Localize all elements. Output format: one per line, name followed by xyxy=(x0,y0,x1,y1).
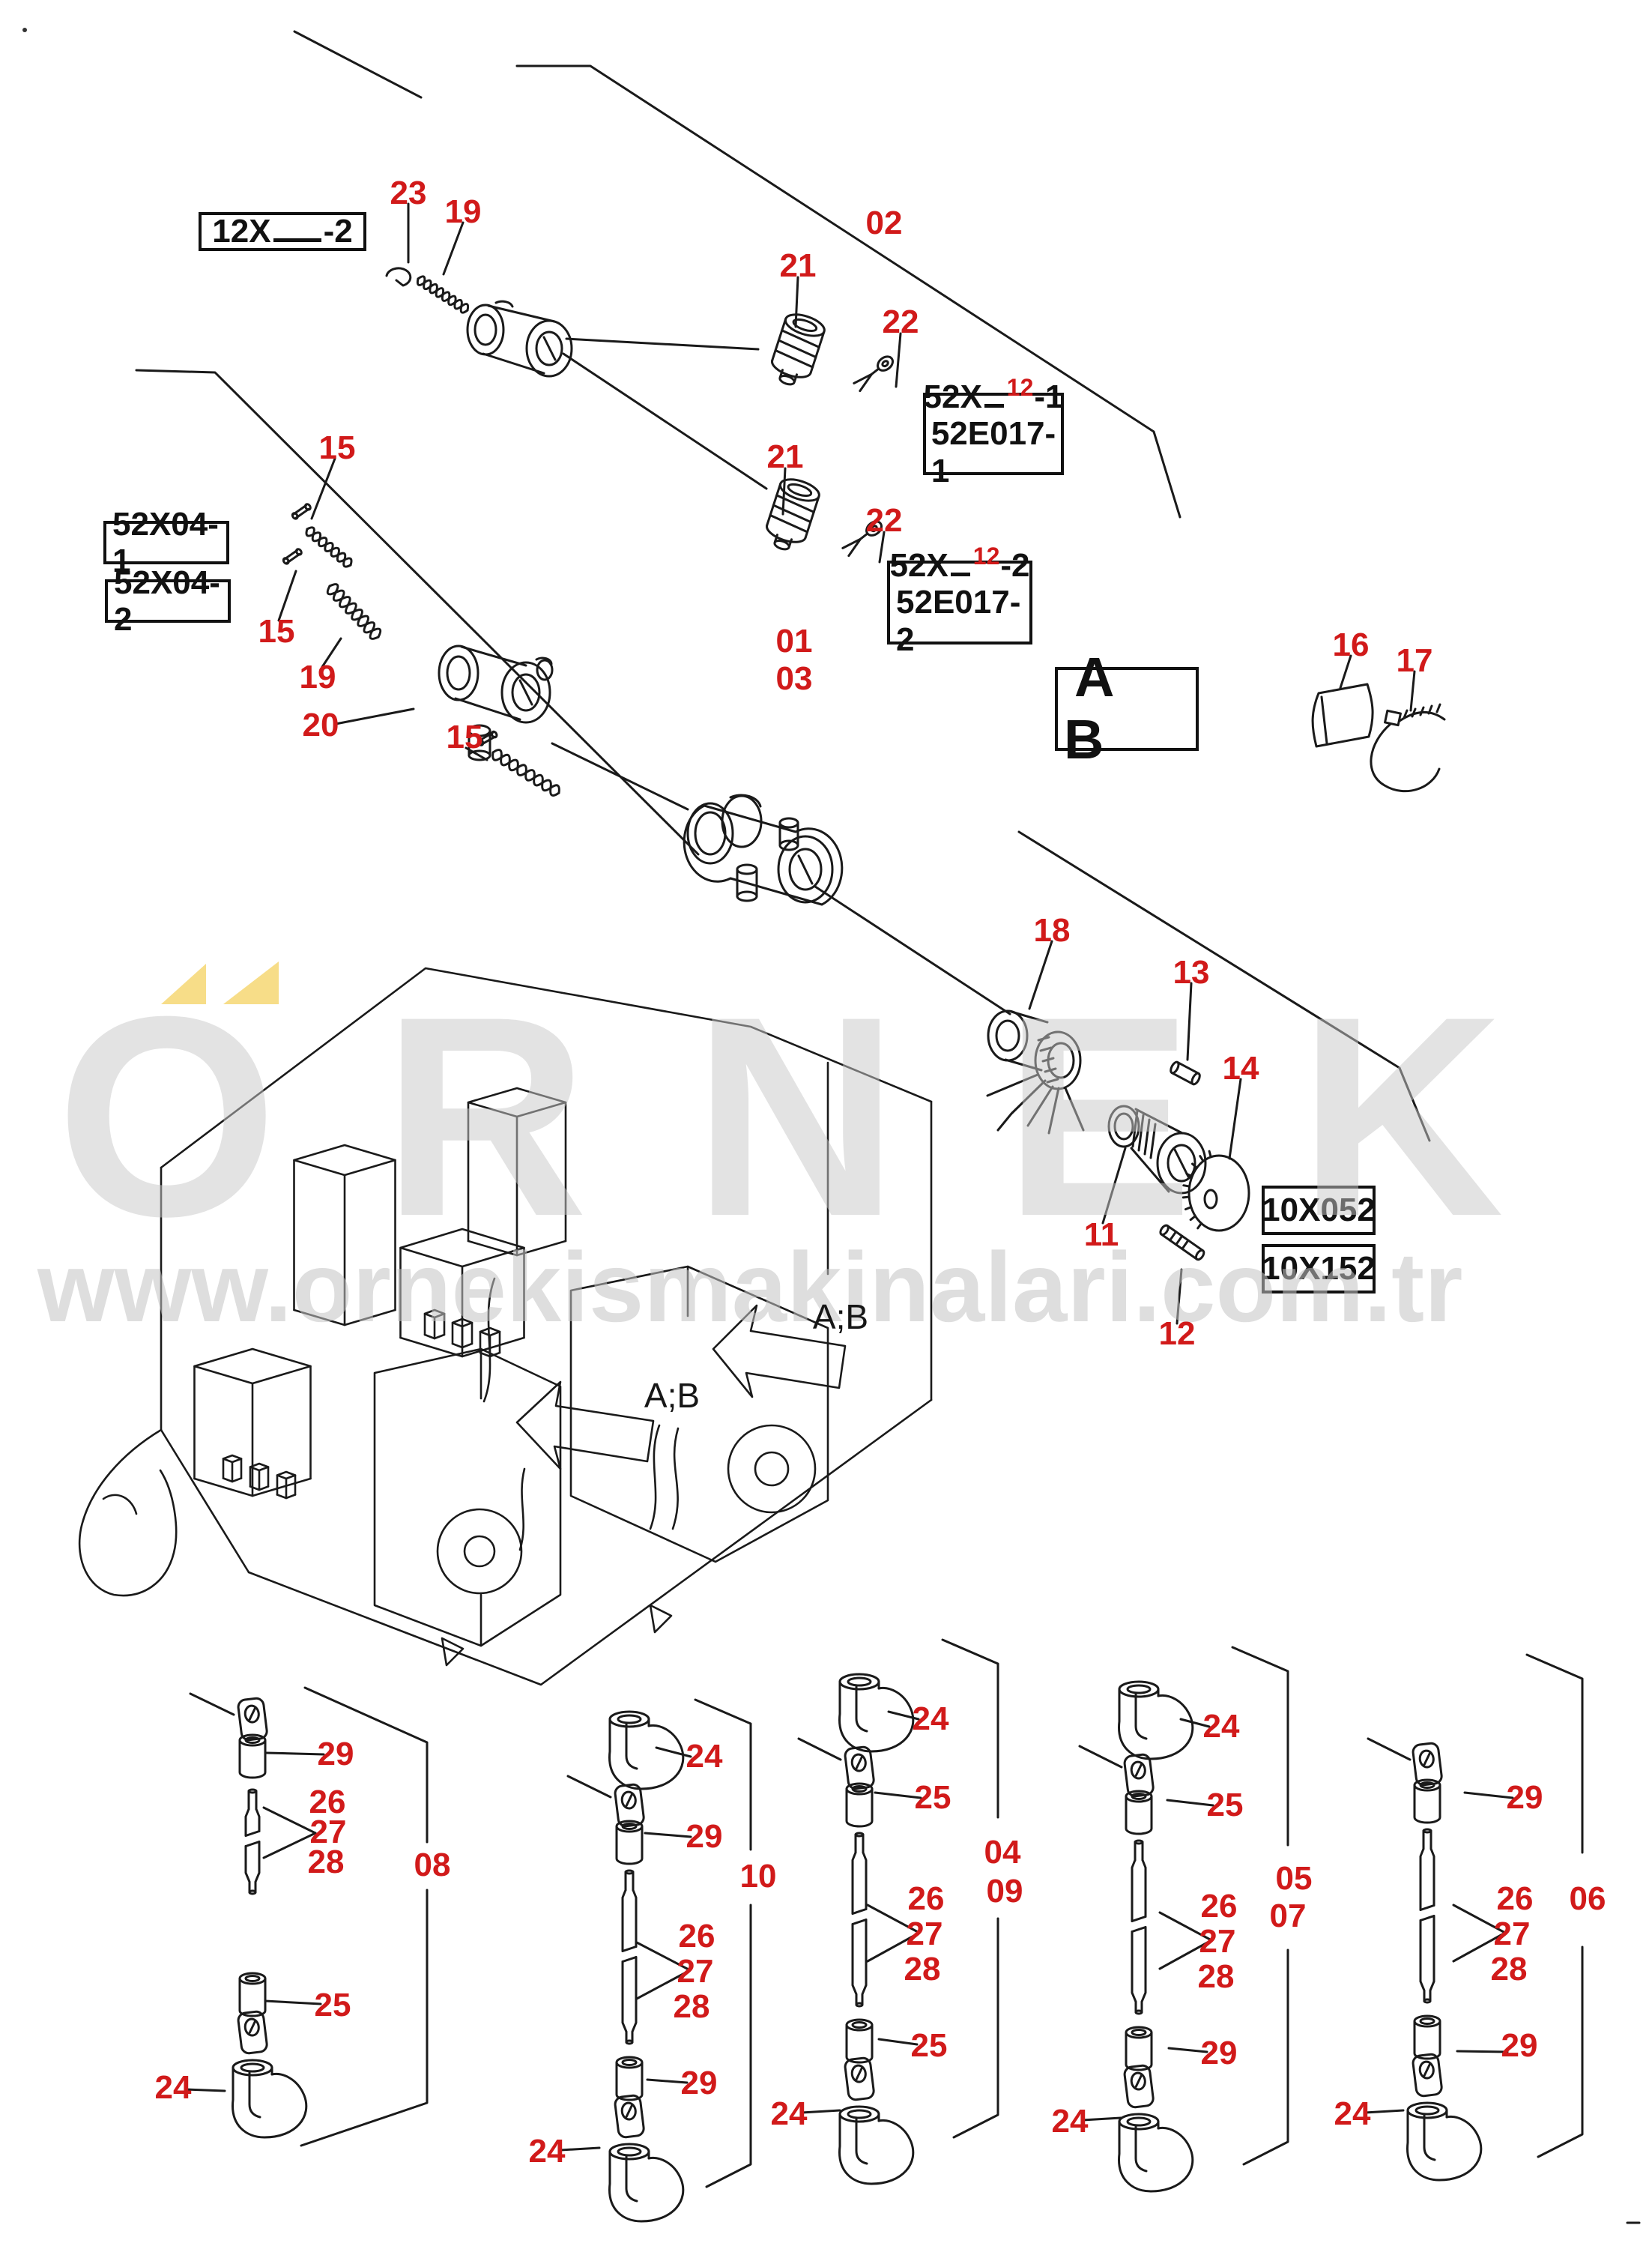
spring-pin-assembly-15b xyxy=(282,548,303,564)
direction-arrow-ab-1 xyxy=(713,1305,845,1397)
key-link-column-4 xyxy=(1119,1682,1193,2191)
spring-pin-assembly-15c xyxy=(477,731,559,795)
relay-box-1 xyxy=(468,1088,566,1255)
retainer-clip-part xyxy=(387,268,411,286)
cable-pin-part xyxy=(291,503,312,519)
key-link-column-5 xyxy=(1408,1742,1481,2180)
parts-catalog-page: { "page": {"width": 2205, "height": 3021… xyxy=(0,0,1652,2264)
diagram-line-art xyxy=(0,0,1652,2264)
excavator-boom-outline xyxy=(79,1430,176,1596)
key-link-column-1 xyxy=(233,1697,306,2137)
relay-box-2 xyxy=(294,1145,396,1325)
fork-22b xyxy=(841,519,884,556)
threaded-plug-part xyxy=(761,475,821,555)
machine-cab-drawing xyxy=(79,968,931,1685)
pin-12 xyxy=(1159,1224,1205,1261)
cable-pin-part xyxy=(282,548,303,564)
ignition-switch-assembly-20 xyxy=(439,646,552,760)
gear-disc-part xyxy=(1183,1151,1249,1231)
fuse-block xyxy=(401,1229,524,1356)
key-link-column-3 xyxy=(840,1674,913,2184)
relay-box-3 xyxy=(195,1349,311,1498)
fork-22a xyxy=(853,354,895,391)
label-sticker-part xyxy=(1313,684,1373,746)
cable-tie-part xyxy=(1371,704,1444,791)
fork-terminal-part xyxy=(841,519,884,556)
spring-part xyxy=(417,277,468,313)
small-arrow-2 xyxy=(650,1605,671,1632)
ignition-switch-assembly-top xyxy=(468,301,572,376)
key-link-column-2 xyxy=(610,1712,683,2221)
fork-terminal-part xyxy=(853,354,895,391)
wiring-connector-part xyxy=(987,1011,1083,1133)
spring-part-19 xyxy=(327,585,380,639)
console-unit-left xyxy=(375,1349,560,1646)
direction-arrow-ab-2 xyxy=(517,1382,653,1469)
spring-pin-assembly-15a xyxy=(291,503,351,567)
pin-13 xyxy=(1170,1061,1202,1086)
plug-21b xyxy=(761,475,821,555)
